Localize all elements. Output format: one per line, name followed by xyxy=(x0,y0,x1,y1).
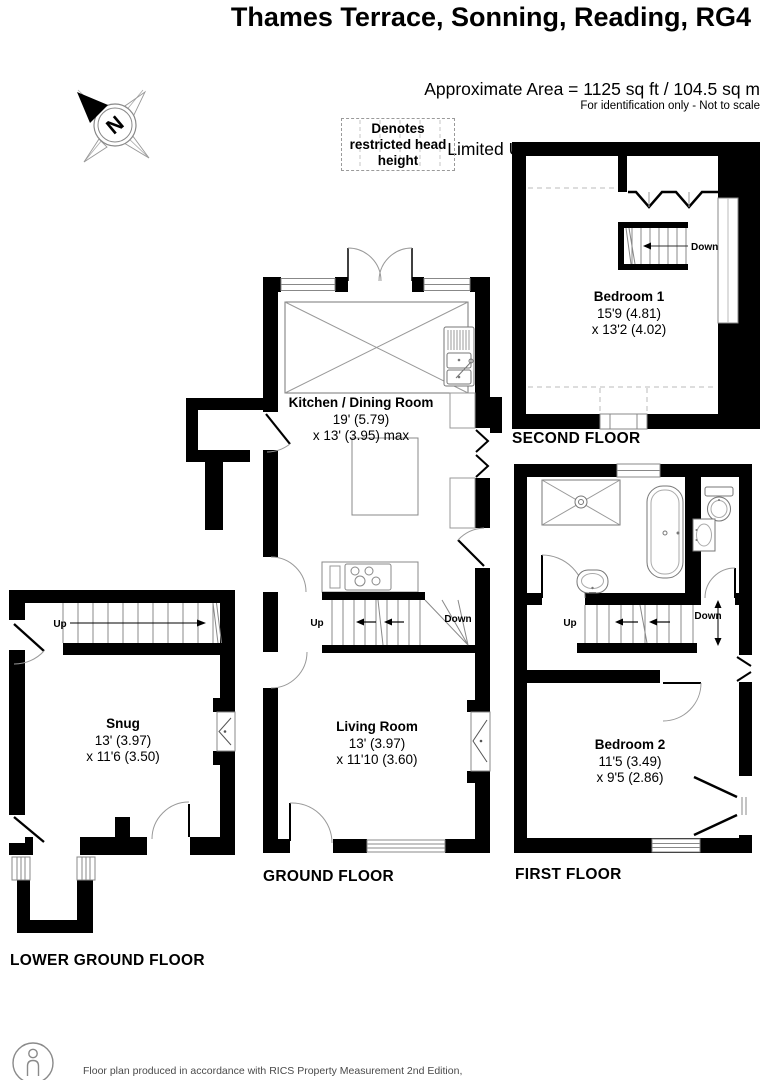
nichecom-logo-icon xyxy=(10,1040,56,1080)
page-title: Thames Terrace, Sonning, Reading, RG4 xyxy=(231,2,751,33)
room-label-bedroom2: Bedroom 2 11'5 (3.49) x 9'5 (2.86) xyxy=(555,737,705,787)
stairs-up-label: Up xyxy=(310,618,323,629)
floorplan-page: Thames Terrace, Sonning, Reading, RG4 Ap… xyxy=(0,0,765,1080)
footer-line1: Floor plan produced in accordance with R… xyxy=(83,1065,558,1079)
footer-disclaimer: Floor plan produced in accordance with R… xyxy=(83,1037,558,1080)
not-to-scale-note: For identification only - Not to scale xyxy=(580,100,760,112)
stairs-down-label: Down xyxy=(444,614,471,625)
legend-text: Denotes restricted head height xyxy=(342,119,454,170)
stairs-down-label: Down xyxy=(691,242,718,253)
caption-second-floor: SECOND FLOOR xyxy=(512,430,640,448)
floor-plan-first: Up Down xyxy=(505,458,763,860)
approximate-area: Approximate Area = 1125 sq ft / 104.5 sq… xyxy=(424,79,760,99)
compass-icon: N xyxy=(62,80,154,172)
caption-lower-ground-floor: LOWER GROUND FLOOR xyxy=(10,952,205,970)
stairs-up-label: Up xyxy=(53,619,66,630)
room-label-living-room: Living Room 13' (3.97) x 11'10 (3.60) xyxy=(302,719,452,769)
restricted-head-height-legend: Denotes restricted head height xyxy=(341,118,455,171)
caption-ground-floor: GROUND FLOOR xyxy=(263,868,394,886)
floor-plan-lower-ground: Up xyxy=(5,586,260,958)
room-label-bedroom1: Bedroom 1 15'9 (4.81) x 13'2 (4.02) xyxy=(554,289,704,339)
room-label-kitchen-dining: Kitchen / Dining Room 19' (5.79) x 13' (… xyxy=(286,395,436,445)
stairs-up-label: Up xyxy=(563,618,576,629)
room-label-snug: Snug 13' (3.97) x 11'6 (3.50) xyxy=(48,716,198,766)
caption-first-floor: FIRST FLOOR xyxy=(515,866,622,884)
